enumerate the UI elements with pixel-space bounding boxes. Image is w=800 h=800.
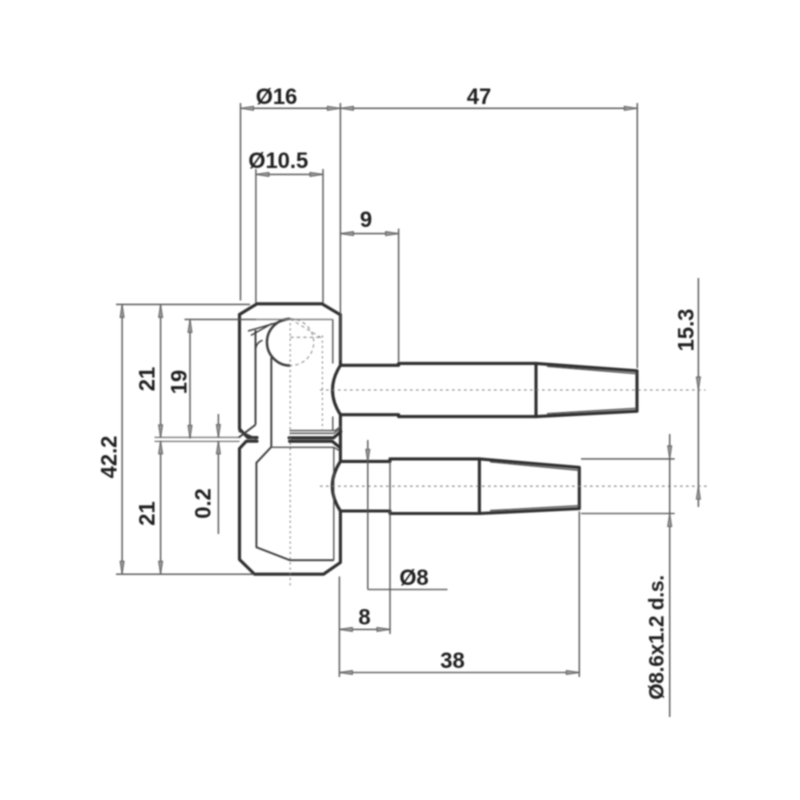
svg-text:8: 8 [358, 605, 370, 630]
svg-text:0.2: 0.2 [191, 488, 216, 519]
svg-text:Ø8.6x1.2 d.s.: Ø8.6x1.2 d.s. [646, 575, 669, 700]
svg-text:Ø8: Ø8 [399, 565, 428, 590]
svg-text:Ø10.5: Ø10.5 [248, 148, 308, 173]
svg-text:47: 47 [467, 84, 491, 109]
svg-text:Ø16: Ø16 [256, 84, 298, 109]
svg-text:42.2: 42.2 [97, 436, 122, 479]
svg-text:19: 19 [167, 370, 192, 394]
svg-text:21: 21 [135, 501, 160, 525]
svg-text:9: 9 [360, 207, 372, 232]
svg-text:38: 38 [440, 648, 464, 673]
svg-text:15.3: 15.3 [674, 309, 699, 352]
svg-text:21: 21 [135, 367, 160, 391]
